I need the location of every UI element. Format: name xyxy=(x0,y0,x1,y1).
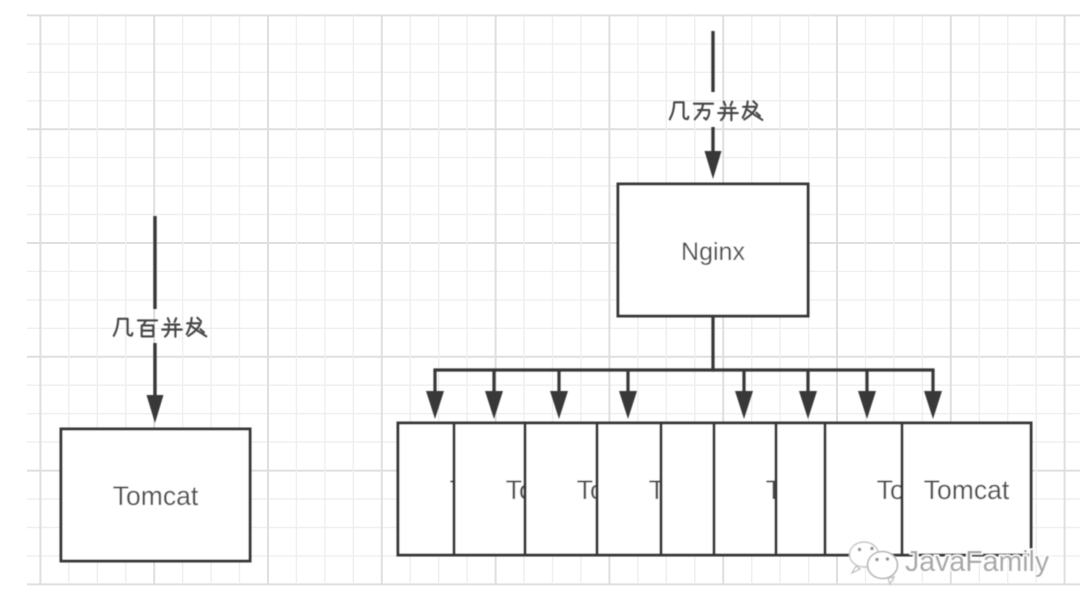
svg-text:Nginx: Nginx xyxy=(681,238,745,266)
svg-text:Tomcat: Tomcat xyxy=(113,481,199,511)
svg-text:JavaFamily: JavaFamily xyxy=(905,546,1050,578)
svg-text:Tomcat: Tomcat xyxy=(924,475,1010,505)
